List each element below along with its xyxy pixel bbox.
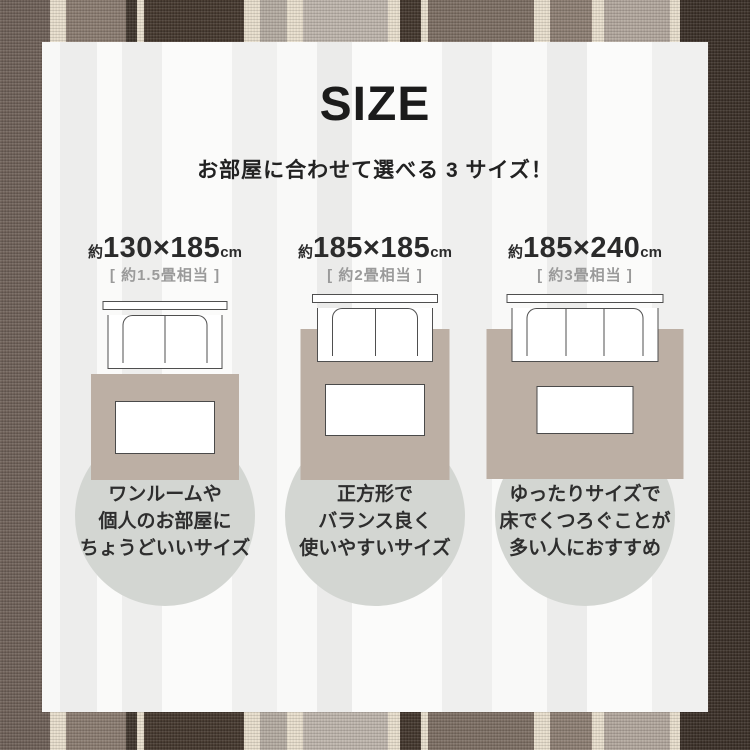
size-unit: cm [640,244,662,261]
size-option-130x185: 約130×185cm [ 約1.5畳相当 ] ワンルームや 個人のお部屋に ちょ… [60,233,270,611]
description-line: ワンルームや [108,485,221,504]
description-line: 正方形で [337,485,413,504]
sofa-top-view [108,301,223,369]
tatami-equivalent: [ 約3畳相当 ] [537,266,633,286]
sofa-body [512,308,659,362]
description-line: 多い人におすすめ [509,539,661,558]
size-unit: cm [220,244,242,261]
size-approx-prefix: 約 [88,244,103,261]
sofa-seats [527,308,644,356]
description-line: バランス良く [318,512,432,531]
size-title: 約185×240cm [508,233,662,263]
sofa-seat-cushion [604,309,643,356]
sofa-backrest [312,294,438,303]
sofa-seats [332,308,418,356]
description-line: ちょうどいいサイズ [80,539,250,558]
sofa-seat-cushion [375,309,418,356]
sofa-seat-cushion [124,316,165,363]
size-option-185x240: 約185×240cm [ 約3畳相当 ] ゆったりサイズで 床でくつろぐことが … [480,233,690,611]
sofa-top-view [317,294,433,362]
tatami-equivalent: [ 約1.5畳相当 ] [110,266,220,286]
low-table-top-view [537,386,634,434]
sofa-seats [123,315,208,363]
size-unit: cm [430,244,452,261]
size-approx-prefix: 約 [298,244,313,261]
size-approx-prefix: 約 [508,244,523,261]
sofa-seat-cushion [565,309,604,356]
size-option-185x185: 約185×185cm [ 約2畳相当 ] 正方形で バランス良く 使いやすいサイ… [270,233,480,611]
sofa-seat-cushion [528,309,566,356]
page-title: SIZE [320,78,431,132]
size-value: 185×185 [313,232,430,264]
page-subtitle: お部屋に合わせて選べる 3 サイズ！ [197,156,553,186]
sofa-body [317,308,433,362]
sofa-body [108,315,223,369]
sofa-seat-cushion [165,316,207,363]
sofa-top-view [512,294,659,362]
room-illustration: 正方形で バランス良く 使いやすいサイズ [270,291,480,611]
description-line: 使いやすいサイズ [299,539,450,558]
size-value: 130×185 [103,232,220,264]
sofa-backrest [103,301,228,310]
sofa-backrest [507,294,664,303]
description-line: 床でくつろぐことが [499,512,670,531]
description-line: 個人のお部屋に [98,512,231,531]
low-table-top-view [115,401,215,454]
sofa-seat-cushion [333,309,375,356]
size-title: 約130×185cm [88,233,242,263]
room-illustration: ゆったりサイズで 床でくつろぐことが 多い人におすすめ [480,291,690,611]
size-options-row: 約130×185cm [ 約1.5畳相当 ] ワンルームや 個人のお部屋に ちょ… [42,233,708,611]
size-title: 約185×185cm [298,233,452,263]
tatami-equivalent: [ 約2畳相当 ] [327,266,423,286]
size-value: 185×240 [523,232,640,264]
room-illustration: ワンルームや 個人のお部屋に ちょうどいいサイズ [60,291,270,611]
low-table-top-view [325,384,425,436]
content-panel: SIZE お部屋に合わせて選べる 3 サイズ！ 約130×185cm [ 約1.… [42,42,708,712]
description-line: ゆったりサイズで [509,485,660,504]
